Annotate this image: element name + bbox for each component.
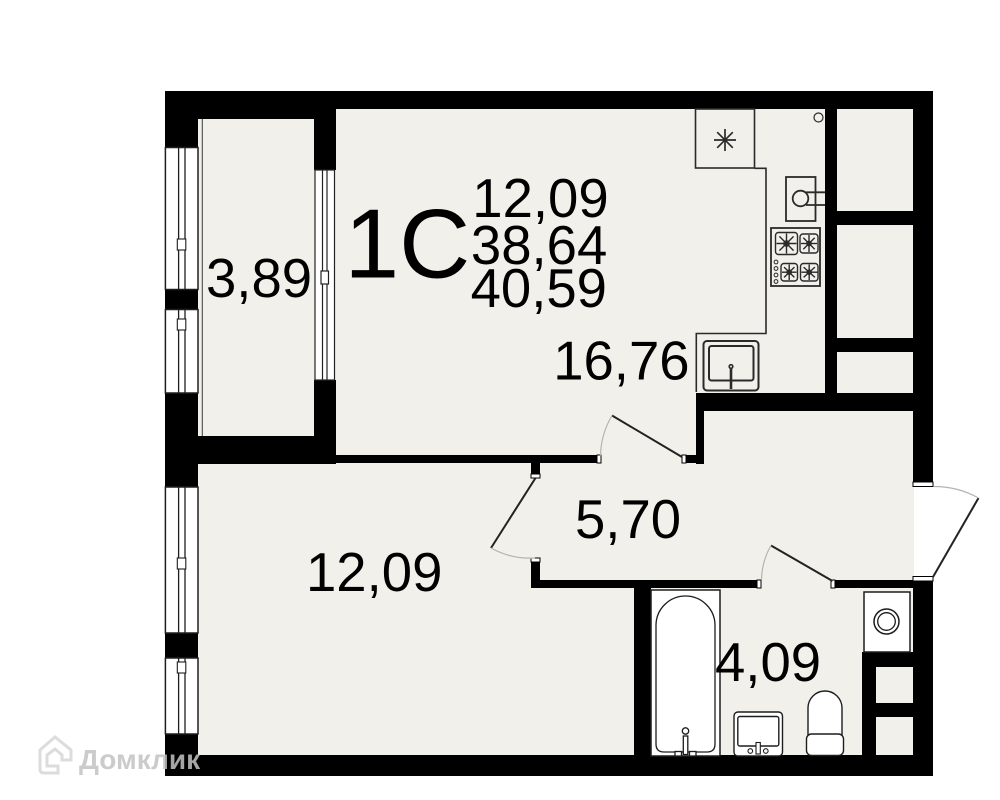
svg-text:Домклик: Домклик <box>79 744 201 775</box>
svg-text:3,89: 3,89 <box>206 248 312 309</box>
svg-text:12,09: 12,09 <box>306 542 442 603</box>
svg-text:1С: 1С <box>344 189 470 299</box>
svg-text:4,09: 4,09 <box>715 632 821 693</box>
svg-text:16,76: 16,76 <box>553 331 689 392</box>
svg-text:5,70: 5,70 <box>575 489 681 550</box>
svg-text:40,59: 40,59 <box>471 258 607 319</box>
